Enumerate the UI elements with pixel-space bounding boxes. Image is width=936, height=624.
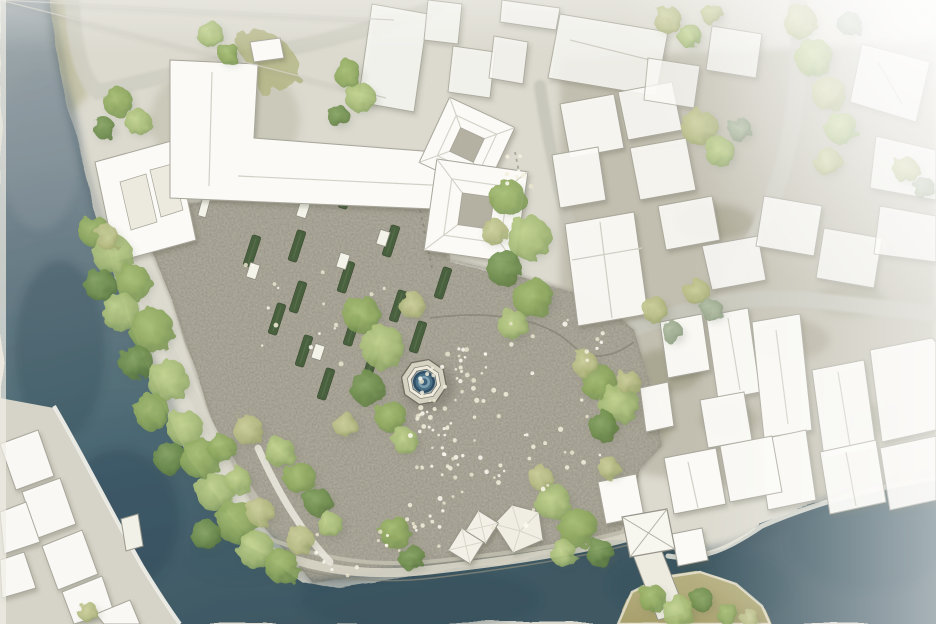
person-dot bbox=[457, 463, 460, 466]
tree-canopy bbox=[399, 292, 425, 318]
person-dot bbox=[473, 415, 477, 419]
person-dot bbox=[441, 473, 444, 476]
person-dot bbox=[564, 451, 567, 454]
person-dot bbox=[523, 523, 528, 528]
building-group bbox=[640, 382, 674, 432]
person-dot bbox=[595, 337, 599, 341]
person-dot bbox=[418, 413, 421, 416]
person-dot bbox=[428, 426, 431, 429]
person-dot bbox=[322, 560, 325, 563]
person-dot bbox=[322, 302, 325, 305]
person-dot bbox=[408, 433, 413, 438]
person-dot bbox=[369, 292, 373, 296]
person-dot bbox=[465, 373, 470, 378]
person-dot bbox=[334, 323, 338, 327]
tree-canopy bbox=[486, 250, 522, 286]
person-dot bbox=[346, 573, 350, 577]
person-dot bbox=[418, 405, 423, 410]
person-dot bbox=[485, 366, 488, 369]
person-dot bbox=[405, 517, 409, 521]
person-dot bbox=[333, 327, 336, 330]
person-dot bbox=[446, 464, 450, 468]
person-dot bbox=[431, 447, 433, 449]
person-dot bbox=[244, 263, 248, 267]
person-dot bbox=[398, 549, 401, 552]
person-dot bbox=[491, 388, 496, 393]
person-dot bbox=[458, 355, 461, 358]
building bbox=[640, 382, 674, 432]
person-dot bbox=[487, 171, 491, 175]
tree-canopy bbox=[490, 180, 526, 216]
person-dot bbox=[478, 455, 482, 459]
person-dot bbox=[429, 400, 432, 403]
tree-canopy bbox=[638, 584, 666, 612]
person-dot bbox=[530, 371, 534, 375]
person-dot bbox=[505, 181, 509, 185]
person-dot bbox=[458, 379, 462, 383]
tree-canopy bbox=[208, 434, 236, 462]
building-group bbox=[552, 147, 606, 208]
tree-canopy bbox=[246, 498, 274, 526]
person-dot bbox=[415, 465, 419, 469]
person-dot bbox=[445, 352, 450, 357]
person-dot bbox=[505, 155, 509, 159]
person-dot bbox=[431, 373, 435, 377]
person-dot bbox=[518, 154, 522, 158]
person-dot bbox=[316, 533, 319, 536]
person-dot bbox=[484, 470, 489, 475]
person-dot bbox=[498, 474, 501, 477]
person-dot bbox=[527, 457, 531, 461]
person-dot bbox=[339, 361, 344, 366]
person-dot bbox=[418, 376, 422, 380]
tree-canopy bbox=[375, 401, 407, 433]
person-dot bbox=[451, 457, 455, 461]
tree-canopy bbox=[304, 488, 332, 516]
person-dot bbox=[481, 372, 484, 375]
person-dot bbox=[517, 170, 520, 173]
person-dot bbox=[497, 414, 501, 418]
tree-canopy bbox=[93, 117, 115, 139]
person-dot bbox=[437, 434, 440, 437]
tree-canopy bbox=[265, 437, 295, 467]
tree-canopy bbox=[125, 109, 151, 135]
person-dot bbox=[461, 454, 464, 457]
tree-canopy bbox=[616, 370, 640, 394]
person-dot bbox=[484, 352, 488, 356]
person-dot bbox=[433, 407, 437, 411]
person-dot bbox=[274, 323, 279, 328]
person-dot bbox=[355, 565, 359, 569]
person-dot bbox=[565, 465, 569, 469]
tree-canopy bbox=[399, 545, 425, 571]
person-dot bbox=[509, 322, 512, 325]
tree-canopy bbox=[642, 297, 668, 323]
person-dot bbox=[470, 473, 474, 477]
person-dot bbox=[460, 390, 464, 394]
tree-canopy bbox=[586, 539, 614, 567]
person-dot bbox=[418, 430, 422, 434]
person-dot bbox=[453, 475, 457, 479]
tree-canopy bbox=[78, 602, 98, 622]
person-dot bbox=[442, 452, 446, 456]
person-dot bbox=[581, 460, 586, 465]
tree-canopy bbox=[286, 526, 314, 554]
person-dot bbox=[425, 372, 429, 376]
person-dot bbox=[386, 534, 389, 537]
tree-canopy bbox=[498, 310, 528, 340]
person-dot bbox=[531, 445, 536, 450]
building bbox=[552, 147, 606, 208]
person-dot bbox=[443, 406, 448, 411]
person-dot bbox=[420, 466, 424, 470]
person-dot bbox=[519, 179, 522, 182]
tree-canopy bbox=[225, 467, 251, 493]
person-dot bbox=[481, 399, 485, 403]
person-dot bbox=[314, 551, 318, 555]
person-dot bbox=[584, 349, 588, 353]
person-dot bbox=[420, 523, 424, 527]
site-plan-screenshot bbox=[0, 0, 936, 624]
person-dot bbox=[515, 175, 519, 179]
person-dot bbox=[385, 544, 387, 546]
person-dot bbox=[261, 344, 264, 347]
tree-canopy bbox=[346, 83, 376, 113]
person-dot bbox=[541, 487, 546, 492]
person-dot bbox=[464, 347, 469, 352]
person-dot bbox=[441, 509, 444, 512]
person-dot bbox=[580, 398, 584, 402]
person-dot bbox=[382, 287, 385, 290]
person-dot bbox=[585, 358, 588, 361]
person-dot bbox=[498, 463, 502, 467]
person-dot bbox=[460, 370, 463, 373]
person-dot bbox=[461, 490, 464, 493]
person-dot bbox=[443, 385, 447, 389]
person-dot bbox=[408, 503, 412, 507]
tree-canopy bbox=[333, 413, 357, 437]
person-dot bbox=[529, 184, 534, 189]
person-dot bbox=[415, 529, 418, 532]
tree-canopy bbox=[598, 457, 620, 479]
site-plan bbox=[0, 0, 936, 624]
person-dot bbox=[432, 399, 436, 403]
person-dot bbox=[442, 502, 445, 505]
person-dot bbox=[440, 365, 444, 369]
person-dot bbox=[377, 539, 380, 542]
tree-canopy bbox=[265, 549, 299, 583]
tree-canopy bbox=[572, 351, 598, 377]
person-dot bbox=[431, 429, 434, 432]
person-dot bbox=[449, 422, 452, 425]
person-dot bbox=[491, 526, 495, 530]
person-dot bbox=[378, 530, 382, 534]
person-dot bbox=[429, 515, 432, 518]
person-dot bbox=[438, 525, 442, 529]
person-dot bbox=[464, 356, 467, 359]
person-dot bbox=[585, 415, 588, 418]
person-dot bbox=[503, 392, 508, 397]
person-dot bbox=[422, 394, 425, 397]
tree-canopy bbox=[134, 394, 170, 430]
building bbox=[565, 212, 648, 326]
tree-canopy bbox=[233, 415, 263, 445]
person-dot bbox=[430, 520, 434, 524]
person-dot bbox=[601, 331, 605, 335]
person-dot bbox=[277, 287, 279, 289]
person-dot bbox=[267, 306, 270, 309]
person-dot bbox=[509, 342, 513, 346]
person-dot bbox=[521, 173, 526, 178]
person-dot bbox=[493, 476, 496, 479]
person-dot bbox=[452, 495, 455, 498]
person-dot bbox=[455, 368, 458, 371]
tree-canopy bbox=[96, 226, 120, 250]
person-dot bbox=[505, 172, 509, 176]
tree-canopy bbox=[191, 520, 221, 550]
person-dot bbox=[273, 282, 277, 286]
person-dot bbox=[413, 525, 417, 529]
tree-canopy bbox=[550, 540, 576, 566]
person-dot bbox=[532, 508, 535, 511]
person-dot bbox=[438, 496, 443, 501]
person-dot bbox=[566, 319, 568, 321]
tree-canopy bbox=[361, 325, 405, 369]
person-dot bbox=[471, 378, 476, 383]
person-dot bbox=[558, 427, 563, 432]
person-dot bbox=[496, 480, 501, 485]
tree-canopy bbox=[317, 512, 343, 538]
person-dot bbox=[441, 446, 444, 449]
person-dot bbox=[321, 270, 325, 274]
person-dot bbox=[570, 450, 574, 454]
person-dot bbox=[543, 441, 547, 445]
person-dot bbox=[600, 341, 604, 345]
person-dot bbox=[443, 434, 446, 437]
tree-canopy bbox=[119, 345, 153, 379]
person-dot bbox=[525, 433, 528, 436]
person-dot bbox=[453, 438, 457, 442]
person-dot bbox=[421, 424, 426, 429]
person-dot bbox=[459, 359, 463, 363]
tree-canopy bbox=[350, 371, 384, 405]
person-dot bbox=[251, 263, 254, 266]
tree-canopy bbox=[103, 87, 133, 117]
person-dot bbox=[412, 522, 415, 525]
person-dot bbox=[431, 367, 434, 370]
top-fade bbox=[0, 0, 936, 55]
person-dot bbox=[445, 426, 449, 430]
tree-canopy bbox=[529, 466, 553, 490]
person-dot bbox=[437, 544, 441, 548]
person-dot bbox=[309, 345, 313, 349]
person-dot bbox=[420, 390, 424, 394]
person-dot bbox=[595, 347, 598, 350]
tree-canopy bbox=[661, 321, 683, 343]
tree-canopy bbox=[481, 219, 507, 245]
person-dot bbox=[430, 465, 433, 468]
person-dot bbox=[503, 470, 505, 472]
person-dot bbox=[474, 398, 479, 403]
edge-sliver bbox=[0, 0, 6, 624]
person-dot bbox=[330, 568, 333, 571]
person-dot bbox=[473, 439, 476, 442]
building-group bbox=[565, 212, 648, 326]
tree-canopy bbox=[284, 462, 316, 494]
person-dot bbox=[428, 415, 433, 420]
person-dot bbox=[456, 377, 459, 380]
person-dot bbox=[471, 386, 476, 391]
person-dot bbox=[599, 454, 602, 457]
person-dot bbox=[318, 332, 321, 335]
person-dot bbox=[457, 347, 460, 350]
tree-canopy bbox=[588, 411, 618, 441]
person-dot bbox=[562, 321, 567, 326]
person-dot bbox=[546, 484, 549, 487]
tree-canopy bbox=[392, 428, 418, 454]
tree-canopy bbox=[327, 105, 349, 127]
person-dot bbox=[415, 417, 419, 421]
person-dot bbox=[459, 366, 463, 370]
person-dot bbox=[426, 411, 429, 414]
person-dot bbox=[531, 334, 535, 338]
person-dot bbox=[454, 399, 457, 402]
